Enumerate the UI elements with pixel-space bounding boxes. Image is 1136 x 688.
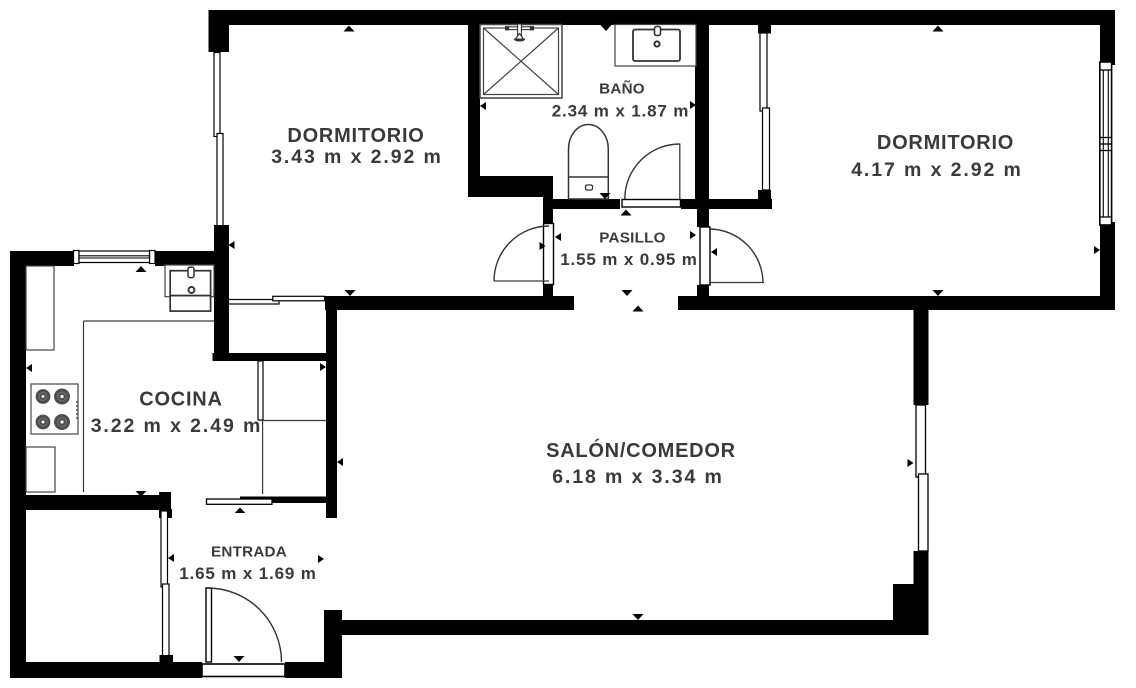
svg-text:BAÑO: BAÑO — [599, 80, 645, 98]
svg-text:SALÓN/COMEDOR: SALÓN/COMEDOR — [546, 438, 736, 462]
svg-text:1.65 m x 1.69 m: 1.65 m x 1.69 m — [179, 564, 317, 583]
svg-text:ENTRADA: ENTRADA — [211, 544, 287, 561]
svg-text:1.55 m x 0.95 m: 1.55 m x 0.95 m — [560, 250, 698, 269]
svg-text:2.34 m x 1.87 m: 2.34 m x 1.87 m — [552, 102, 690, 121]
svg-text:4.17 m x 2.92 m: 4.17 m x 2.92 m — [851, 159, 1023, 181]
svg-text:3.22 m x 2.49 m: 3.22 m x 2.49 m — [91, 415, 263, 437]
svg-text:PASILLO: PASILLO — [599, 230, 665, 247]
svg-text:DORMITORIO: DORMITORIO — [877, 132, 1014, 154]
svg-text:3.43 m x 2.92 m: 3.43 m x 2.92 m — [271, 146, 443, 168]
svg-text:DORMITORIO: DORMITORIO — [287, 125, 424, 147]
svg-text:6.18 m x 3.34 m: 6.18 m x 3.34 m — [552, 466, 724, 488]
svg-text:COCINA: COCINA — [139, 389, 222, 411]
